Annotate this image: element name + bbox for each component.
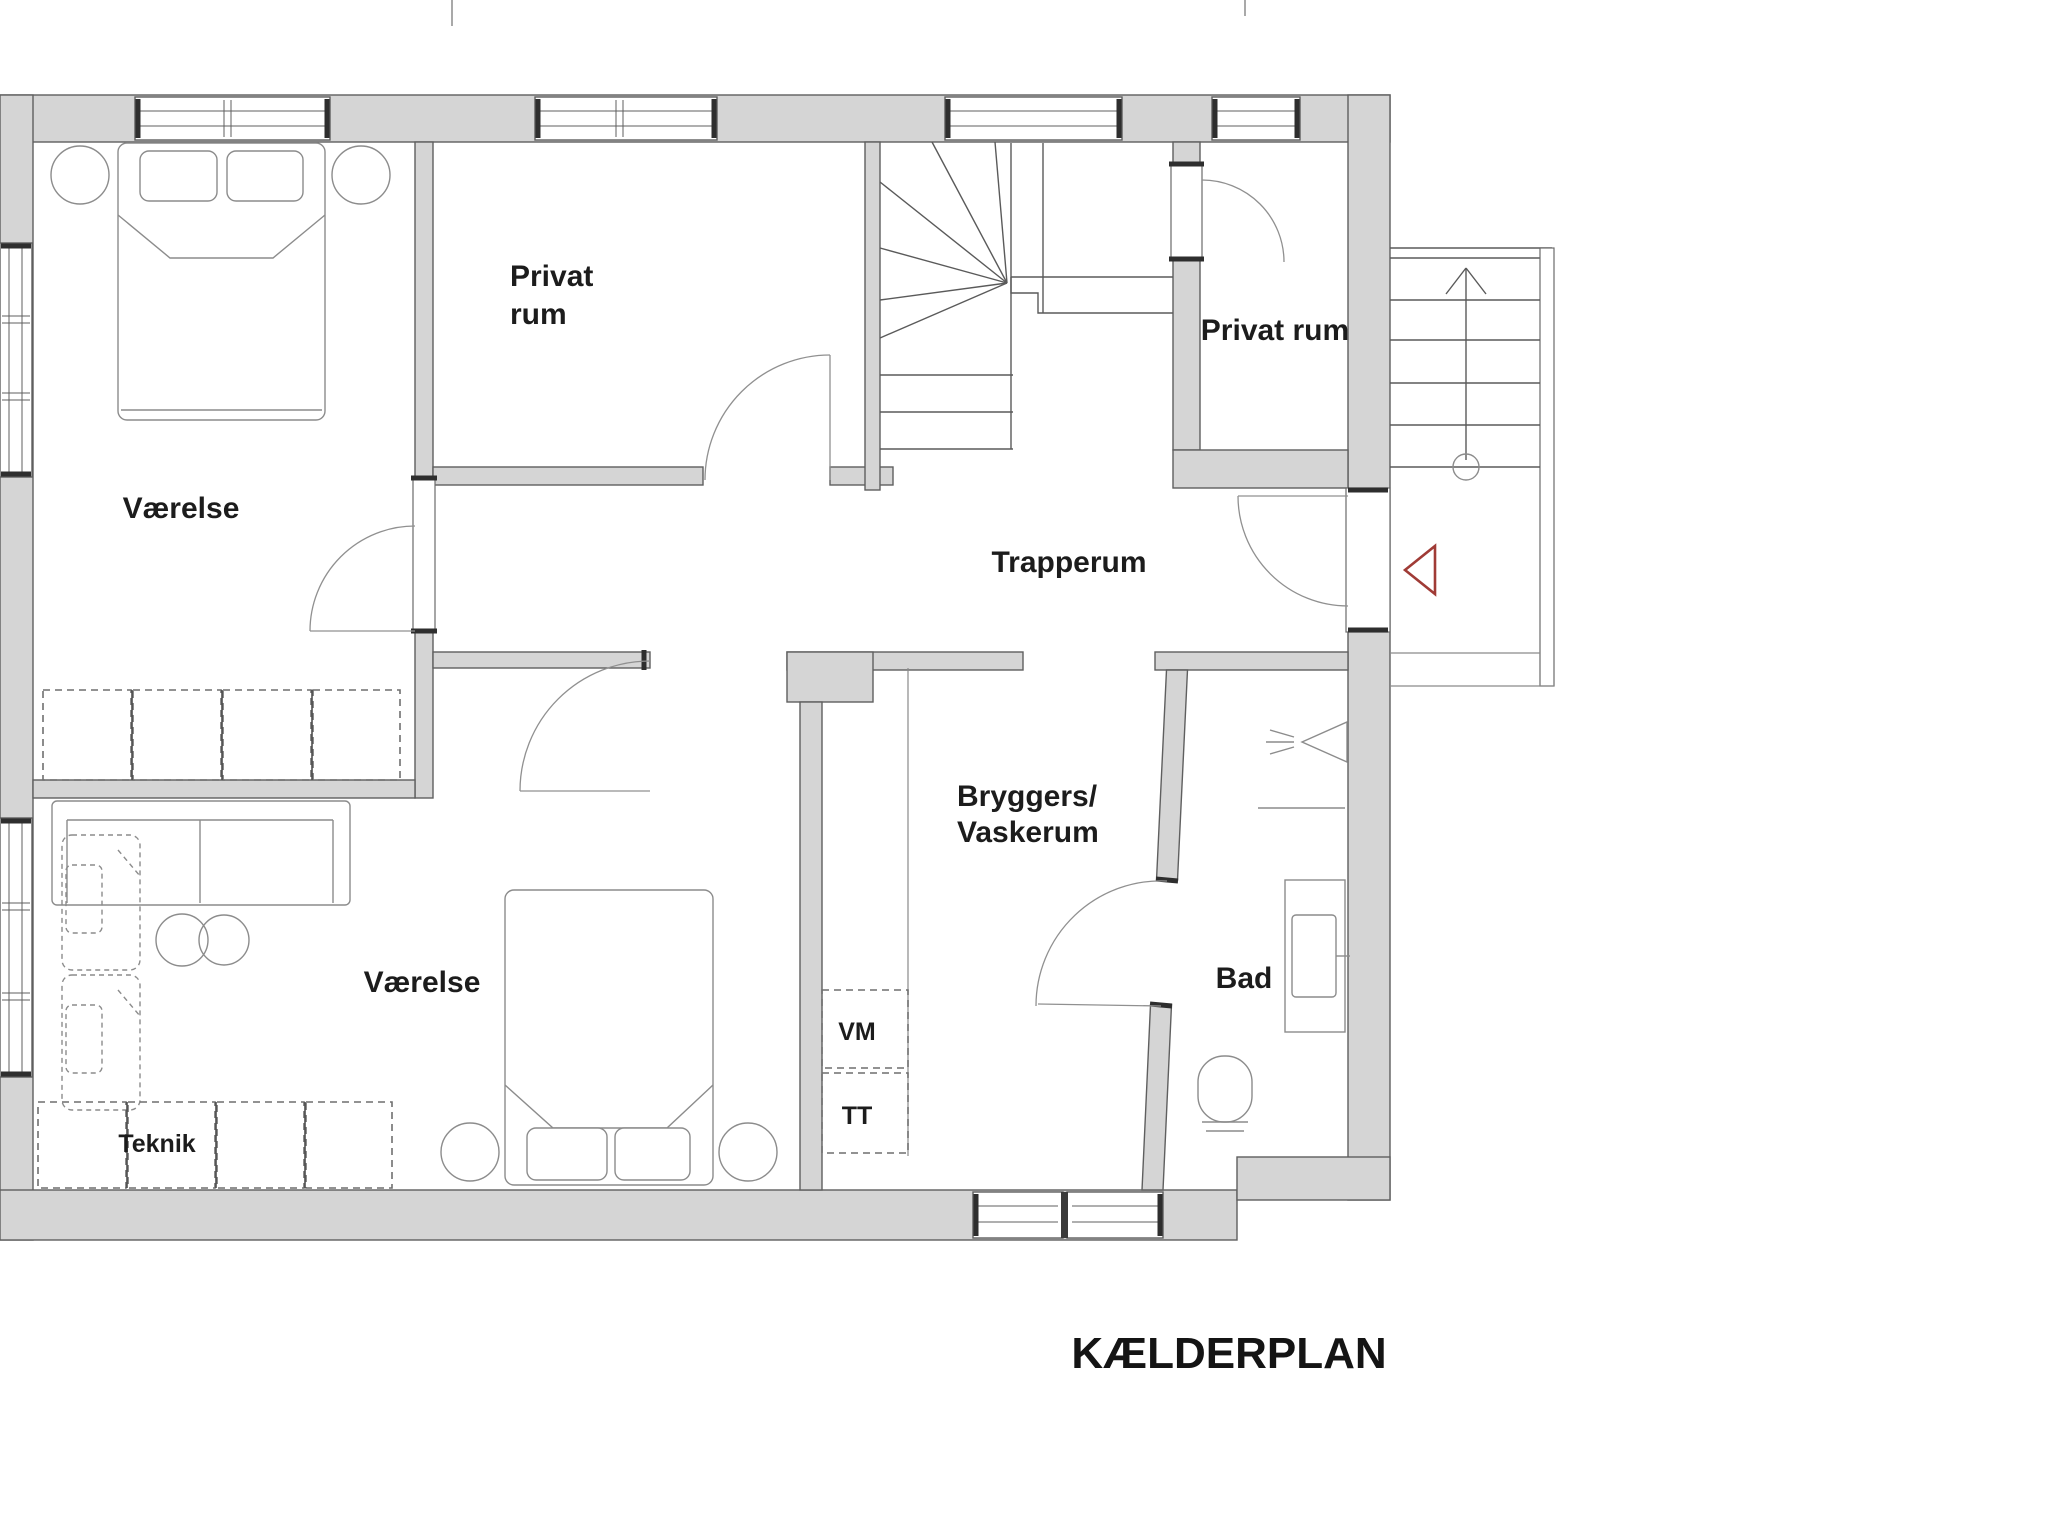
wall-privatrum-south-a: [433, 467, 703, 485]
pillow: [527, 1128, 607, 1180]
label-bedroom-top: Værelse: [123, 492, 240, 525]
wall-bath-north: [1155, 652, 1348, 670]
wall-bedroom2-east: [800, 702, 822, 1190]
door-privatrum-top: [705, 355, 830, 480]
label-bathroom: Bad: [1216, 962, 1273, 995]
nightstand: [51, 146, 109, 204]
wall-tee-block: [787, 652, 873, 702]
doors: [310, 163, 1390, 1006]
bed-bedroom2: [505, 890, 713, 1185]
window-bedroom1-west: [0, 243, 32, 477]
label-stair-room: Trapperum: [991, 546, 1146, 579]
window-utility-south-1: [973, 1192, 1063, 1238]
label-private-room-top-line1: Privat: [510, 260, 593, 293]
pillow: [140, 151, 217, 201]
door-entrance: [1238, 488, 1390, 632]
wall-right: [1348, 95, 1390, 1200]
wall-privatrum2-west-a: [1173, 142, 1200, 163]
window-stair-north: [945, 97, 1122, 140]
shower-icon: [1266, 722, 1347, 762]
window-privatrum2-north: [1212, 97, 1300, 140]
label-utility-line1: Bryggers/: [957, 780, 1098, 813]
nightstand: [719, 1123, 777, 1181]
nightstand: [332, 146, 390, 204]
exterior-stair-wall: [1540, 248, 1554, 686]
door-bath: [1036, 881, 1167, 1006]
entrance-marker-icon: [1405, 546, 1435, 594]
exterior-staircase: [1390, 248, 1554, 686]
stool: [156, 914, 208, 966]
wall-privatrum2-west-b: [1173, 258, 1200, 450]
sofa-bedroom2: [52, 801, 350, 905]
window-privatrum-north: [535, 97, 717, 140]
window-bedroom2-west: [0, 818, 32, 1077]
wall-stair-west: [865, 142, 880, 490]
floor-plan-svg: Værelse Privat rum Trapperum Privat rum …: [0, 0, 2048, 1536]
label-bedroom-bottom: Værelse: [364, 966, 481, 999]
plan-title: KÆLDERPLAN: [1071, 1329, 1386, 1378]
label-private-room-right: Privat rum: [1201, 314, 1349, 347]
label-private-room-top-line2: rum: [510, 298, 567, 331]
wardrobe-bedroom1: [43, 690, 400, 780]
wall-bedroom1-east: [415, 142, 433, 798]
label-washer: VM: [838, 1018, 876, 1046]
toilet: [1198, 1056, 1252, 1131]
wall-bottom-bath: [1237, 1157, 1390, 1200]
basement-floor-plan: Værelse Privat rum Trapperum Privat rum …: [0, 0, 2048, 1536]
wall-privatrum-south-b: [830, 467, 893, 485]
door-bedroom2: [520, 661, 650, 791]
wall-slanted-lower: [1142, 1005, 1172, 1190]
window-bedroom1-north: [135, 97, 330, 140]
label-utility-line2: Vaskerum: [957, 816, 1099, 849]
wall-bedroom1-south: [33, 780, 415, 798]
bed-bedroom1: [118, 143, 325, 420]
window-utility-south-2: [1061, 1192, 1163, 1238]
interior-staircase: [880, 142, 1173, 449]
door-privatrum-right: [1169, 163, 1284, 262]
door-bedroom1: [310, 477, 437, 632]
wall-privatrum2-south: [1173, 450, 1348, 488]
wall-slanted-upper: [1157, 670, 1188, 880]
nightstand: [441, 1123, 499, 1181]
vanity-sink: [1285, 880, 1350, 1032]
stool: [199, 915, 249, 965]
label-dryer: TT: [842, 1102, 873, 1130]
label-teknik: Teknik: [118, 1130, 195, 1158]
pillow: [227, 151, 303, 201]
teknik-cabinets: [38, 1102, 392, 1188]
pillow: [615, 1128, 690, 1180]
